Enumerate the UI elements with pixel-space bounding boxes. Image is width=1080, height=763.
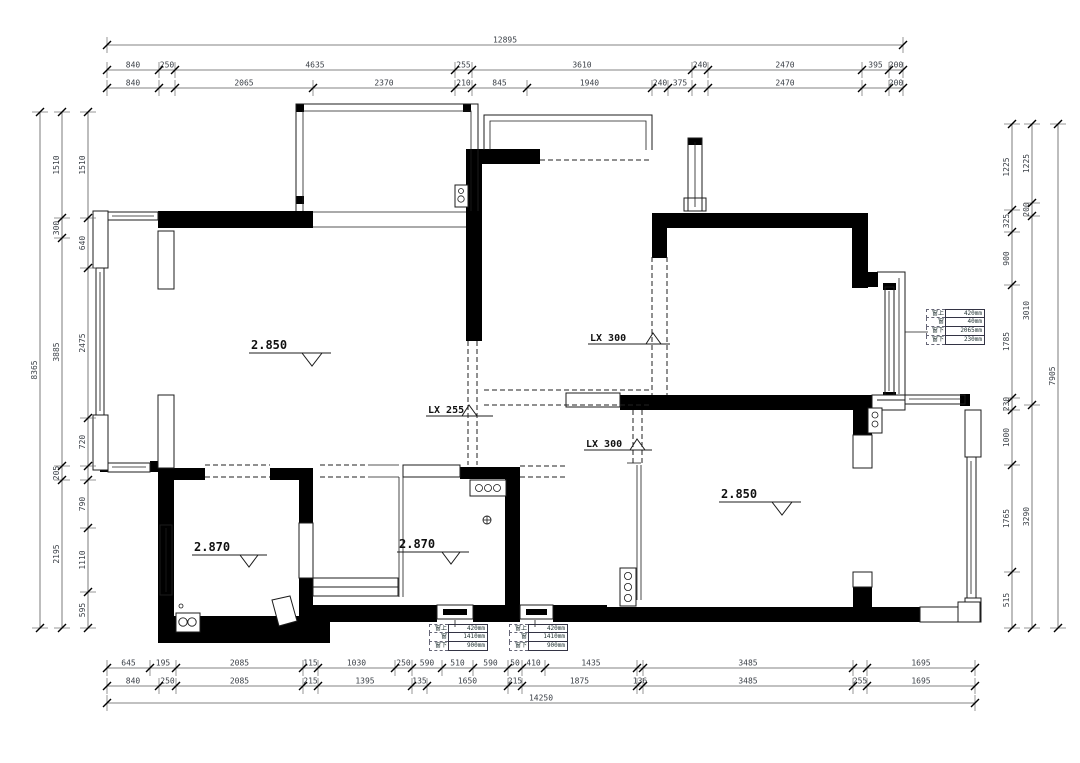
dimension-label: 300 (52, 221, 61, 236)
wall-segment (853, 587, 872, 607)
dimension-label: 325 (1002, 214, 1011, 229)
elevation-triangle (240, 555, 258, 567)
window-table-label: 窗下 (926, 336, 945, 345)
window-table-value: 2065mm (945, 327, 985, 336)
elevation-triangle (772, 502, 792, 515)
window-table-value: 230mm (945, 336, 985, 345)
dimension-label: 720 (78, 435, 87, 450)
dimension-label: 255 (456, 61, 471, 70)
window-table-label: 窗下 (926, 327, 945, 336)
column (920, 607, 958, 622)
window-table-value: 420mm (448, 624, 488, 633)
dimension-label: 3885 (52, 342, 61, 361)
column (93, 415, 108, 470)
wall-gap (299, 523, 313, 578)
dimension-label: 1395 (355, 677, 374, 686)
dim-row-right-col2: 122520030103290 (1022, 120, 1040, 632)
elevation-triangle (442, 552, 460, 564)
dimension-label: 3485 (738, 659, 757, 668)
window-table-value: 1410mm (448, 633, 488, 642)
dimension-label: 1875 (570, 677, 589, 686)
dimension-label: 50 (510, 659, 520, 668)
wall-segment (466, 149, 482, 341)
window-table-row: 窗下900mm (429, 642, 488, 651)
dimension-label: 1435 (581, 659, 600, 668)
window-spec-table-bottom-right: 窗上420mm窗1410mm窗下900mm (509, 624, 568, 651)
wall-segment (553, 605, 607, 622)
wall-segment (330, 605, 437, 622)
bath-mid-elevation-label: 2.870 (399, 537, 435, 551)
dimension-label: 2370 (374, 79, 393, 88)
window (108, 463, 150, 472)
dimension-label: 2085 (230, 659, 249, 668)
dimension-label: 8365 (30, 360, 39, 379)
window-table-row: 窗下230mm (926, 336, 985, 345)
dimension-label: 2475 (78, 333, 87, 352)
window-table-value: 1410mm (528, 633, 568, 642)
dim-row-right-col1: 1225325900178523010001765515 (1002, 120, 1020, 632)
dimension-label: 12895 (493, 36, 517, 45)
dim-row-left-overall: 8365 (30, 108, 48, 632)
window-table-row: 窗1410mm (509, 633, 568, 642)
window-table-label: 窗下 (509, 642, 528, 651)
dimension-label: 840 (126, 61, 141, 70)
wall-segment (852, 272, 878, 287)
wall-segment (150, 461, 158, 472)
dimension-label: 250 (160, 677, 175, 686)
bay-window-outline (484, 115, 652, 150)
master-elevation-label: 2.850 (721, 487, 757, 501)
dim-row-bottom-row1: 6451952085115103025059051059050410143534… (103, 659, 979, 677)
window-table-value: 420mm (945, 309, 985, 318)
dim-row-bottom-row2: 8402502085215139513516502151875136348525… (103, 677, 979, 695)
window (905, 395, 965, 404)
dimension-label: 845 (492, 79, 507, 88)
window-table-label: 窗下 (429, 642, 448, 651)
window-sash (158, 595, 174, 603)
elevation-triangle (302, 353, 322, 366)
dimension-label: 1695 (911, 659, 930, 668)
wall-segment (158, 211, 313, 228)
living-elevation-label: 2.850 (251, 338, 287, 352)
window-table-label: 窗上 (926, 309, 945, 318)
dimension-label: 3610 (572, 61, 591, 70)
dimension-label: 2065 (234, 79, 253, 88)
dim-row-top-row2: 840250463525536102402470395200 (103, 61, 907, 79)
lx-marker-middle-label: LX 255 (428, 405, 464, 416)
window-table-label: 窗上 (509, 624, 528, 633)
window-sash (526, 609, 547, 615)
window-table-row: 窗下2065mm (926, 327, 985, 336)
wall-segment (652, 213, 868, 228)
dimension-label: 1030 (347, 659, 366, 668)
dimension-label: 375 (673, 79, 688, 88)
lx-triangle (630, 439, 645, 450)
window-table-row: 窗下900mm (509, 642, 568, 651)
dimension-label: 3010 (1022, 301, 1031, 320)
dimension-label: 2085 (230, 677, 249, 686)
dim-row-left-col2: 151030038852052195 (52, 108, 70, 632)
wall-stub (853, 572, 872, 587)
dimension-label: 7905 (1048, 366, 1057, 385)
window-table-row: 窗40mm (926, 318, 985, 327)
wall-stub (853, 435, 872, 468)
window-sash (158, 517, 174, 525)
window-table-value: 40mm (945, 318, 985, 327)
dimension-label: 790 (78, 497, 87, 512)
dimension-label: 1650 (458, 677, 477, 686)
wall-segment (652, 213, 667, 258)
washer-fixture (176, 604, 200, 632)
dimension-label: 1110 (78, 550, 87, 569)
dimension-label: 510 (450, 659, 465, 668)
dimension-label: 250 (160, 61, 175, 70)
dimension-label: 230 (1002, 397, 1011, 412)
walls-layer (100, 104, 970, 643)
dashed-layer (205, 160, 667, 477)
dimension-label: 640 (78, 236, 87, 251)
dimension-label: 1940 (580, 79, 599, 88)
dimension-label: 3485 (738, 677, 757, 686)
dimension-label: 14250 (529, 694, 553, 703)
bay-window-outline (296, 104, 478, 211)
dimension-label: 1225 (1002, 157, 1011, 176)
window-sash (443, 609, 467, 615)
wall-segment (505, 467, 520, 622)
bay-window-inner (303, 111, 471, 211)
dimension-label: 240 (653, 79, 668, 88)
bays-layer (296, 104, 905, 600)
dimension-label: 515 (1002, 593, 1011, 608)
bath-left-elevation-label: 2.870 (194, 540, 230, 554)
window-table-label: 窗 (429, 633, 448, 642)
window-table-row: 窗上420mm (926, 309, 985, 318)
dimension-label: 200 (1022, 202, 1031, 217)
dimension-label: 900 (1002, 251, 1011, 266)
dim-row-right-overall: 7905 (1048, 120, 1066, 632)
bay-window-outline (877, 272, 905, 400)
dimension-label: 1785 (1002, 332, 1011, 351)
dimension-label: 3290 (1022, 507, 1031, 526)
dimension-label: 590 (483, 659, 498, 668)
column (958, 602, 980, 622)
dimension-label: 2195 (52, 544, 61, 563)
lx-triangle (646, 333, 661, 344)
lx-triangle (462, 405, 477, 416)
dimension-label: 840 (126, 677, 141, 686)
wall-stub (158, 231, 174, 289)
dimension-label: 645 (121, 659, 136, 668)
window-table-label: 窗上 (429, 624, 448, 633)
window-spec-table-bottom-left: 窗上420mm窗1410mm窗下900mm (429, 624, 488, 651)
water-heater-fixture (868, 408, 882, 433)
cooktop-fixture (455, 185, 468, 207)
dimension-label: 1765 (1002, 509, 1011, 528)
column (965, 410, 981, 457)
dimension-label: 590 (420, 659, 435, 668)
window-table-value: 900mm (528, 642, 568, 651)
window-table-value: 420mm (528, 624, 568, 633)
dimension-label: 410 (526, 659, 541, 668)
wall-stub (158, 395, 174, 468)
dimension-label: 1695 (911, 677, 930, 686)
wall-segment (620, 395, 872, 410)
lx-marker-top-label: LX 300 (590, 333, 626, 344)
threshold-step (313, 587, 398, 596)
dimension-label: 1000 (1002, 428, 1011, 447)
floor-drain-icon (483, 516, 491, 524)
window-spec-table-right: 窗上420mm窗40mm窗下2065mm窗下230mm (926, 309, 985, 345)
window-table-row: 窗1410mm (429, 633, 488, 642)
window (885, 287, 894, 395)
dim-row-top-overall: 12895 (103, 36, 907, 54)
window-table-row: 窗上420mm (509, 624, 568, 633)
dimension-label: 1510 (78, 155, 87, 174)
lx-marker-bottom-label: LX 300 (586, 439, 622, 450)
dimension-label: 195 (156, 659, 171, 668)
window-table-label: 窗 (509, 633, 528, 642)
dimension-label: 4635 (305, 61, 324, 70)
dimension-label: 240 (693, 61, 708, 70)
bay-window-inner (490, 121, 646, 150)
dimension-label: 395 (868, 61, 883, 70)
dimension-label: 1510 (52, 155, 61, 174)
dimension-label: 250 (396, 659, 411, 668)
column (93, 211, 108, 268)
window-table-row: 窗上420mm (429, 624, 488, 633)
window-table-value: 900mm (448, 642, 488, 651)
stove-fixture (470, 480, 506, 496)
wall-segment (313, 605, 330, 643)
dim-row-top-row3: 8402065237021084519402403752470200 (103, 79, 907, 97)
window (967, 457, 976, 598)
dimension-label: 595 (78, 603, 87, 618)
floor-plan-canvas: 2.850 2.850 2.870 2.870 LX 300 LX 255 LX… (0, 0, 1080, 763)
dimension-label: 2470 (775, 61, 794, 70)
dimension-label: 840 (126, 79, 141, 88)
door-lintel (403, 465, 460, 477)
threshold-step (313, 578, 398, 587)
dim-row-bottom-overall: 14250 (103, 694, 979, 712)
window-table-label: 窗 (926, 318, 945, 327)
wall-segment (607, 607, 920, 622)
dimension-label: 1225 (1022, 154, 1031, 173)
dimension-label: 210 (456, 79, 471, 88)
dim-row-left-col3: 151064024757207901110595 (78, 108, 96, 632)
dimension-label: 2470 (775, 79, 794, 88)
cabinet-fixture (620, 568, 636, 606)
